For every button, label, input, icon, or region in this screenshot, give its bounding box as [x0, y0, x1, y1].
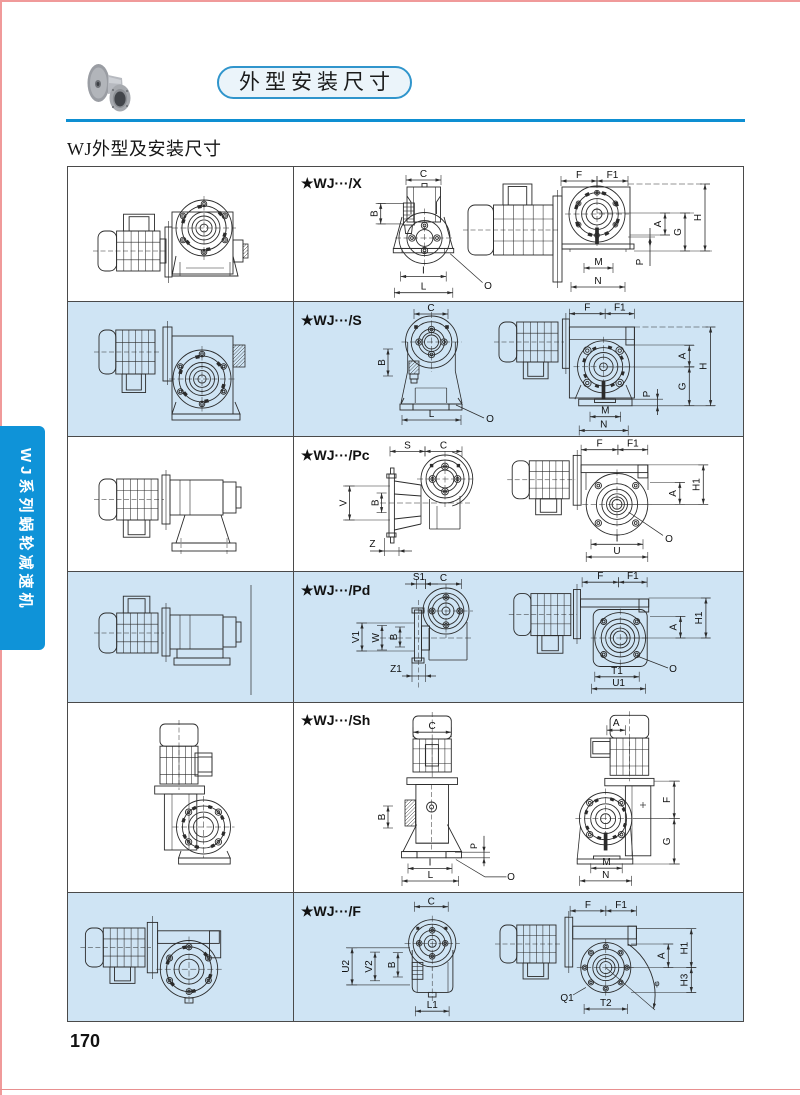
- svg-text:V2: V2: [364, 960, 375, 973]
- svg-text:G: G: [662, 837, 673, 845]
- svg-text:L: L: [421, 282, 427, 293]
- svg-text:L: L: [429, 409, 435, 420]
- svg-text:L: L: [428, 870, 434, 881]
- svg-text:U2: U2: [341, 960, 352, 973]
- svg-text:C: C: [440, 440, 447, 451]
- svg-text:F: F: [585, 900, 591, 911]
- svg-text:F1: F1: [607, 170, 619, 181]
- svg-text:L1: L1: [427, 1000, 439, 1011]
- svg-text:H1: H1: [694, 611, 705, 624]
- svg-text:P: P: [635, 258, 646, 265]
- svg-text:O: O: [486, 414, 494, 425]
- svg-text:A: A: [668, 490, 679, 497]
- svg-text:V1: V1: [351, 630, 362, 643]
- svg-text:F: F: [584, 303, 590, 314]
- svg-text:Q1: Q1: [560, 993, 574, 1004]
- svg-text:W: W: [371, 632, 382, 642]
- svg-text:I: I: [422, 266, 425, 277]
- svg-text:M: M: [602, 857, 610, 868]
- svg-text:A: A: [613, 718, 620, 729]
- svg-text:S1: S1: [413, 572, 426, 583]
- svg-text:F: F: [576, 170, 582, 181]
- svg-text:P: P: [642, 390, 653, 397]
- svg-text:A: A: [677, 352, 688, 359]
- svg-text:B: B: [377, 813, 388, 820]
- svg-text:C: C: [427, 303, 434, 314]
- svg-text:B: B: [387, 961, 398, 968]
- svg-text:G: G: [673, 228, 684, 236]
- svg-text:H: H: [699, 363, 710, 370]
- svg-text:A: A: [669, 624, 680, 631]
- svg-text:F: F: [596, 439, 602, 450]
- svg-text:B: B: [377, 359, 388, 366]
- svg-text:O: O: [665, 534, 673, 545]
- svg-text:A: A: [653, 220, 664, 227]
- svg-text:T1: T1: [611, 666, 623, 677]
- svg-text:U1: U1: [612, 678, 625, 689]
- svg-text:T: T: [614, 533, 620, 544]
- svg-text:B: B: [371, 499, 382, 506]
- svg-text:O: O: [507, 872, 515, 883]
- svg-text:φ: φ: [654, 979, 659, 988]
- svg-text:A: A: [656, 952, 667, 959]
- svg-text:C: C: [440, 573, 447, 584]
- svg-text:H1: H1: [679, 941, 690, 954]
- svg-text:B: B: [389, 633, 400, 640]
- svg-text:F1: F1: [627, 439, 639, 450]
- svg-text:F1: F1: [615, 900, 627, 911]
- svg-text:N: N: [594, 276, 601, 287]
- svg-text:C: C: [420, 169, 427, 180]
- svg-text:Z: Z: [369, 539, 375, 550]
- svg-text:I: I: [429, 858, 432, 869]
- svg-text:N: N: [602, 870, 609, 881]
- svg-text:O: O: [484, 281, 492, 292]
- svg-text:T2: T2: [600, 998, 612, 1009]
- svg-text:C: C: [428, 897, 435, 908]
- svg-text:G: G: [677, 382, 688, 390]
- svg-text:C: C: [429, 721, 436, 732]
- svg-text:F: F: [597, 571, 603, 582]
- svg-text:H1: H1: [691, 478, 702, 491]
- svg-text:M: M: [594, 257, 602, 268]
- svg-text:H3: H3: [679, 973, 690, 986]
- svg-text:M: M: [601, 406, 609, 417]
- svg-text:F1: F1: [614, 303, 626, 314]
- svg-text:O: O: [669, 664, 677, 675]
- svg-text:P: P: [469, 843, 479, 849]
- svg-text:F1: F1: [627, 571, 639, 582]
- svg-text:S: S: [404, 440, 411, 451]
- svg-text:N: N: [600, 420, 607, 431]
- svg-text:B: B: [370, 210, 381, 217]
- svg-text:F: F: [662, 797, 673, 803]
- svg-text:Z1: Z1: [390, 664, 402, 675]
- svg-text:H: H: [693, 214, 704, 221]
- svg-text:V: V: [339, 499, 350, 506]
- svg-text:U: U: [613, 546, 620, 557]
